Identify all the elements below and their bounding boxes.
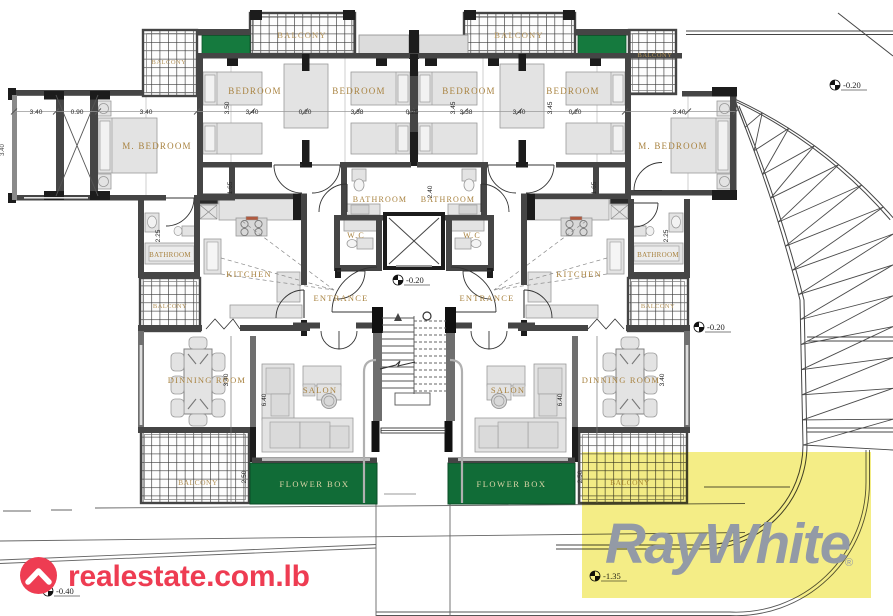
svg-text:M. BEDROOM: M. BEDROOM: [122, 141, 192, 151]
svg-text:0.20: 0.20: [299, 109, 312, 116]
svg-text:W.C: W.C: [463, 231, 481, 240]
svg-text:DINNING ROOM: DINNING ROOM: [168, 375, 246, 385]
svg-text:1.65: 1.65: [591, 181, 598, 194]
svg-text:BEDROOM: BEDROOM: [442, 86, 495, 96]
svg-text:BALCONY: BALCONY: [152, 59, 187, 66]
svg-text:3.40: 3.40: [673, 109, 686, 116]
svg-text:1.65: 1.65: [227, 181, 234, 194]
svg-text:BALCONY: BALCONY: [153, 303, 187, 310]
svg-text:3.38: 3.38: [351, 109, 364, 116]
svg-text:3.40: 3.40: [246, 109, 259, 116]
svg-text:3.50: 3.50: [224, 101, 231, 114]
svg-text:3.40: 3.40: [140, 109, 153, 116]
svg-text:FLOWER BOX: FLOWER BOX: [476, 479, 546, 489]
svg-text:3.45: 3.45: [450, 101, 457, 114]
svg-text:BEDROOM: BEDROOM: [228, 86, 281, 96]
svg-text:KITCHEN: KITCHEN: [556, 269, 602, 279]
svg-text:ENTRANCE: ENTRANCE: [314, 293, 369, 303]
svg-text:BEDROOM: BEDROOM: [546, 86, 599, 96]
svg-text:BATHROOM: BATHROOM: [149, 251, 191, 259]
svg-text:3.38: 3.38: [460, 109, 473, 116]
svg-text:KITCHEN: KITCHEN: [226, 269, 272, 279]
svg-text:BATHROOM: BATHROOM: [637, 251, 679, 259]
svg-text:SALON: SALON: [303, 385, 337, 395]
svg-text:FLOWER BOX: FLOWER BOX: [279, 479, 349, 489]
svg-text:-0.20: -0.20: [707, 322, 725, 332]
svg-text:-0.20: -0.20: [843, 80, 861, 90]
svg-text:-0.20: -0.20: [406, 275, 424, 285]
svg-text:BEDROOM: BEDROOM: [332, 86, 385, 96]
svg-text:3.40: 3.40: [0, 144, 6, 156]
svg-text:0.20: 0.20: [569, 109, 582, 116]
svg-text:3.45: 3.45: [547, 101, 554, 114]
svg-text:W.C: W.C: [347, 231, 365, 240]
svg-text:0.90: 0.90: [71, 109, 84, 116]
svg-text:6.40: 6.40: [261, 393, 268, 406]
svg-text:BALCONY: BALCONY: [494, 30, 544, 40]
svg-text:BATHROOM: BATHROOM: [353, 195, 408, 204]
svg-text:2.50: 2.50: [241, 470, 248, 483]
svg-text:M. BEDROOM: M. BEDROOM: [638, 141, 708, 151]
svg-text:DINNING ROOM: DINNING ROOM: [582, 375, 660, 385]
svg-text:3.40: 3.40: [30, 109, 43, 116]
svg-text:RayWhite: RayWhite: [605, 512, 850, 575]
svg-text:BATHROOM: BATHROOM: [421, 195, 476, 204]
svg-text:realestate.com.lb: realestate.com.lb: [68, 560, 310, 593]
svg-text:ENTRANCE: ENTRANCE: [460, 293, 515, 303]
svg-text:BALCONY: BALCONY: [178, 478, 218, 487]
svg-text:2.25: 2.25: [155, 229, 162, 242]
svg-text:®: ®: [845, 557, 853, 569]
svg-text:SALON: SALON: [491, 385, 525, 395]
svg-text:2.25: 2.25: [663, 229, 670, 242]
svg-text:6.40: 6.40: [557, 393, 564, 406]
svg-text:BALCONY: BALCONY: [277, 30, 327, 40]
svg-text:3.40: 3.40: [513, 109, 526, 116]
svg-text:BALCONY: BALCONY: [638, 52, 673, 59]
svg-text:0.25: 0.25: [406, 109, 419, 116]
svg-text:BALCONY: BALCONY: [641, 303, 675, 310]
